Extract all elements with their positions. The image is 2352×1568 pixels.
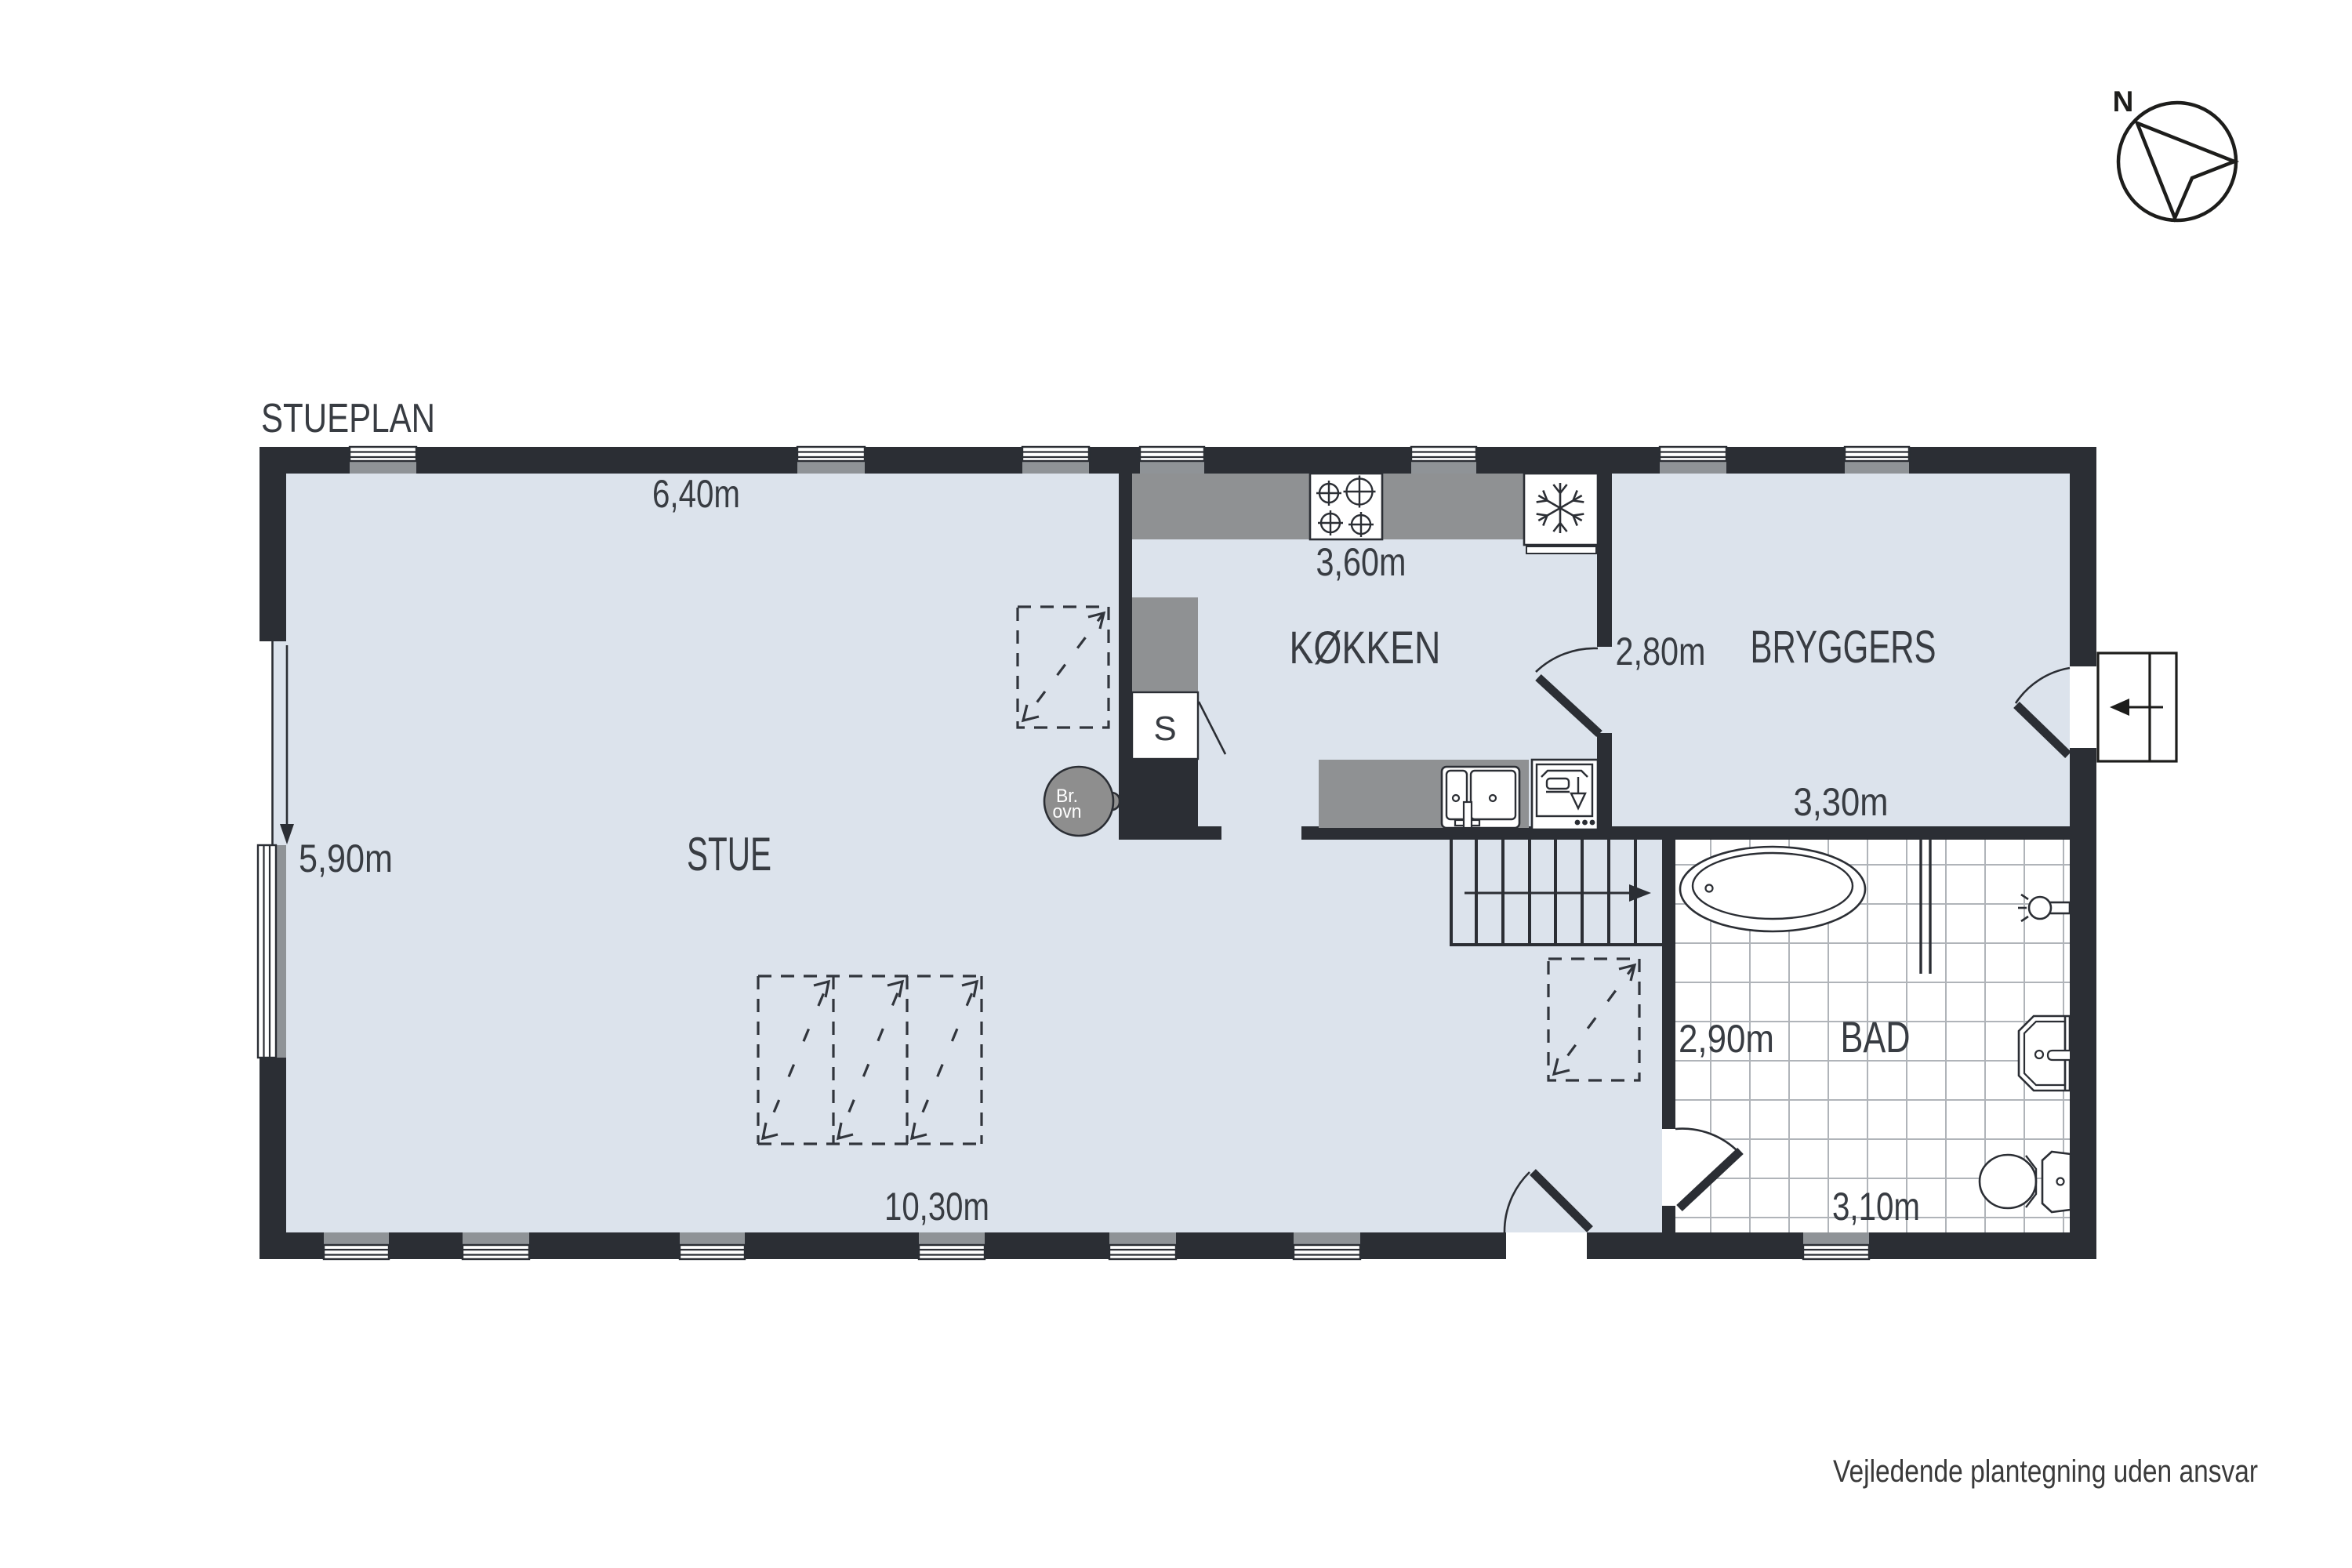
svg-text:BAD: BAD	[1841, 1012, 1911, 1062]
svg-text:ovn: ovn	[1053, 801, 1082, 822]
svg-text:10,30m: 10,30m	[884, 1185, 989, 1229]
svg-text:3,10m: 3,10m	[1832, 1185, 1920, 1229]
svg-text:2,90m: 2,90m	[1679, 1017, 1774, 1061]
svg-text:N: N	[2113, 85, 2134, 118]
svg-text:STUEPLAN: STUEPLAN	[261, 396, 435, 441]
svg-text:5,90m: 5,90m	[299, 837, 393, 880]
svg-text:3,60m: 3,60m	[1316, 540, 1406, 584]
svg-text:Vejledende plantegning uden an: Vejledende plantegning uden ansvar	[1833, 1454, 2258, 1489]
svg-text:KØKKEN: KØKKEN	[1290, 622, 1441, 673]
svg-text:6,40m: 6,40m	[652, 472, 740, 516]
svg-text:BRYGGERS: BRYGGERS	[1751, 622, 1936, 673]
svg-text:STUE: STUE	[687, 828, 771, 880]
svg-text:3,30m: 3,30m	[1794, 780, 1889, 824]
svg-text:S: S	[1153, 710, 1176, 748]
svg-text:2,80m: 2,80m	[1616, 630, 1706, 673]
